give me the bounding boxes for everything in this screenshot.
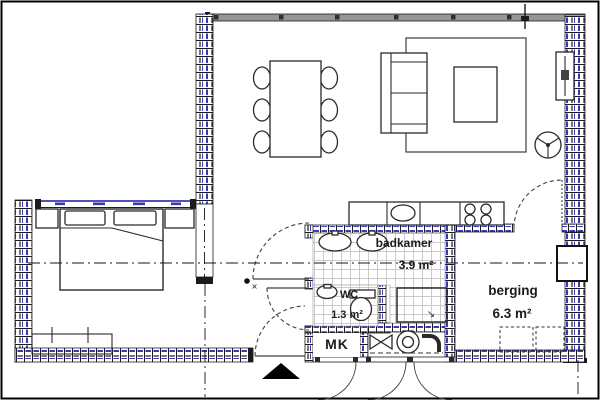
radiator [556,52,574,100]
bedroom-window-band [35,199,196,209]
ventilation-symbol [535,132,561,158]
berging-area-label: 6.3 m² [492,306,532,321]
pillow [114,211,156,225]
dining-chair [254,99,271,121]
hall-wall-seg [305,278,313,289]
bottom-exterior-wall [15,348,253,362]
left-exterior-wall [15,200,32,362]
floor-plan: ↘ [0,0,600,400]
floor-plan-page: ↘ [0,0,600,400]
hall-wall-seg [305,225,313,238]
closet-south-wall [313,357,455,362]
badkamer-label: badkamer [376,236,433,250]
duct-shaft [557,246,587,281]
dining-table [270,61,321,157]
berging-label: berging [488,283,538,298]
drain-arrow-icon: ↘ [427,309,435,320]
kitchen [349,202,504,225]
kitchen-sink [391,205,415,221]
badkamer-area-label: 3.9 m² [399,258,434,272]
dining-chair [321,67,338,89]
dining-chair [321,131,338,153]
nightstand [36,209,58,228]
dining-set [254,61,338,157]
mk-label: MK [325,336,349,352]
wc-washbasin [317,285,337,299]
wall-end-cap [196,277,213,284]
wc-label: WC [340,289,358,301]
wall-end-cap [248,348,253,362]
berging-north-wall [562,224,585,232]
pillow [65,211,105,225]
coffee-table [454,67,497,122]
sofa [381,53,427,133]
living-partition-wall [196,14,213,204]
berging-south-wall [455,350,585,362]
dining-chair [321,99,338,121]
wc-area-label: 1.3 m² [331,309,363,321]
dining-chair [254,131,271,153]
dining-chair [254,67,271,89]
bathroom-north-wall [305,225,455,233]
wc-east-wall [378,285,386,326]
nightstand [165,209,194,228]
door-knob-symbol [244,278,250,284]
